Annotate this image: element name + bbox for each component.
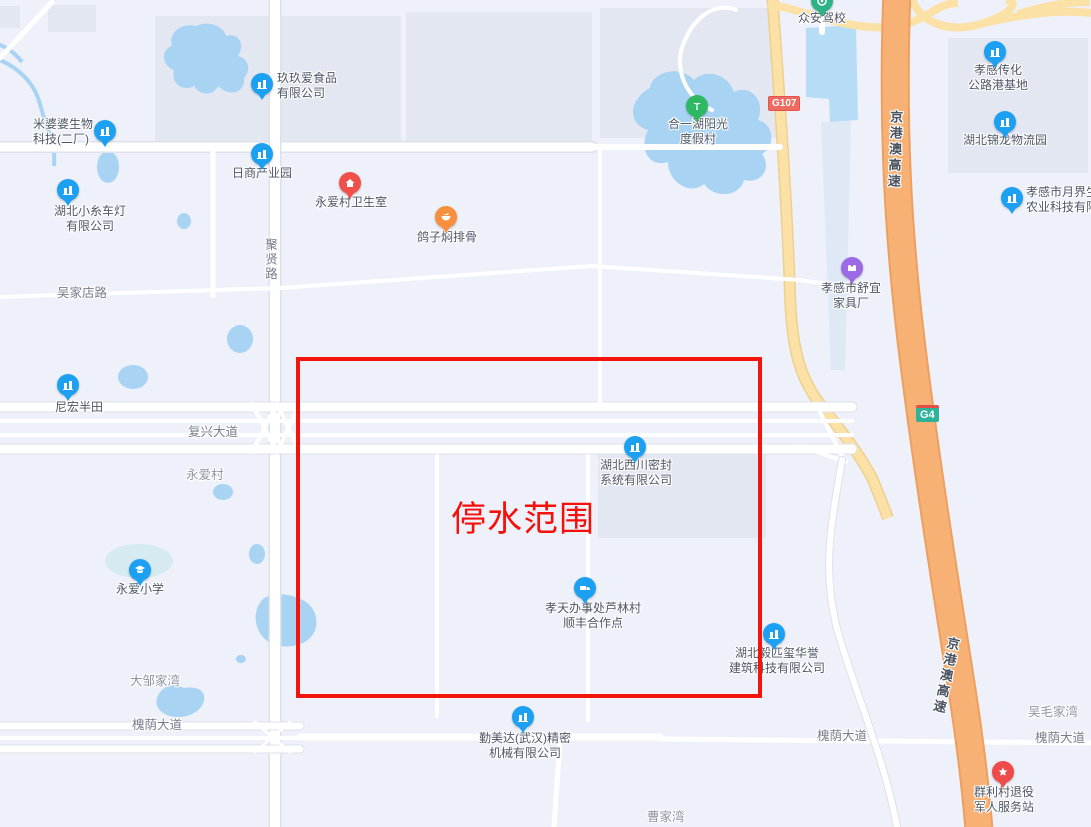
canal-pale bbox=[821, 121, 851, 370]
poi-pin-jinlong[interactable] bbox=[994, 111, 1016, 133]
poi-label-line: 尼宏半田 bbox=[55, 400, 103, 415]
poi-label-line: 军人服务站 bbox=[974, 800, 1034, 815]
poi-label-yuejie[interactable]: 孝感市月界生农业科技有限公 bbox=[1026, 185, 1091, 215]
food-bowl-icon bbox=[440, 211, 452, 223]
building-icon bbox=[62, 184, 74, 196]
g4-road-badge: G4 bbox=[916, 405, 939, 422]
poi-pin-yipixi[interactable] bbox=[763, 623, 785, 645]
poi-label-nihong[interactable]: 尼宏半田 bbox=[55, 400, 103, 415]
g107-road-badge: G107 bbox=[768, 96, 800, 111]
poi-pin-qinmeida[interactable] bbox=[512, 706, 534, 728]
expressway-label: 京港澳高速 bbox=[886, 110, 904, 190]
poi-pin-yuejie[interactable] bbox=[1001, 187, 1023, 209]
water-outage-zone-label: 停水范围 bbox=[451, 491, 595, 542]
poi-pin-pigeon-restaurant[interactable] bbox=[435, 206, 457, 228]
village-label-caojiawan: 曹家湾 bbox=[647, 810, 685, 825]
road-label-fuxingdadao: 复兴大道 bbox=[188, 425, 238, 440]
poi-label-jiujiuai[interactable]: 玖玖爱食品有限公司 bbox=[277, 71, 337, 101]
poi-pin-koito[interactable] bbox=[57, 179, 79, 201]
village-label-wumaojiawan: 吴毛家湾 bbox=[1028, 705, 1078, 720]
road-label-huaiyindadao: 槐荫大道 bbox=[817, 729, 867, 744]
building-icon bbox=[99, 125, 111, 137]
building-icon bbox=[256, 78, 268, 90]
poi-pin-jiujiuai[interactable] bbox=[251, 73, 273, 95]
poi-label-line: 公路港基地 bbox=[968, 78, 1028, 93]
poi-pin-clinic[interactable] bbox=[339, 172, 361, 194]
poi-label-line: 有限公司 bbox=[54, 219, 126, 234]
poi-label-line: 机械有限公司 bbox=[479, 746, 571, 761]
steering-wheel-icon bbox=[816, 0, 828, 7]
building-icon bbox=[999, 116, 1011, 128]
poi-label-line: 孝感市月界生 bbox=[1026, 185, 1091, 200]
poi-label-line: 米婆婆生物 bbox=[33, 117, 93, 132]
village-label-yongaicun: 永爱村 bbox=[186, 468, 224, 483]
road-label-huaiyindadao: 槐荫大道 bbox=[1035, 731, 1085, 746]
poi-label-line: 度假村 bbox=[668, 132, 728, 147]
village-label-dazoujiawan: 大邹家湾 bbox=[130, 674, 180, 689]
poi-label-line: 科技(二厂) bbox=[33, 132, 93, 147]
poi-pin-veterans-station[interactable] bbox=[992, 761, 1014, 783]
road-label-juxianlu: 聚贤路 bbox=[262, 238, 277, 282]
poi-pin-primary-school[interactable] bbox=[129, 559, 151, 581]
sofa-icon bbox=[846, 262, 858, 274]
poi-label-line: 农业科技有限公 bbox=[1026, 200, 1091, 215]
poi-pin-rishang[interactable] bbox=[251, 143, 273, 165]
building-icon bbox=[768, 628, 780, 640]
poi-pin-mipopo[interactable] bbox=[94, 120, 116, 142]
building-icon bbox=[62, 379, 74, 391]
building-icon bbox=[989, 46, 1001, 58]
building-icon bbox=[256, 148, 268, 160]
building-icon bbox=[517, 711, 529, 723]
building-icon bbox=[1006, 192, 1018, 204]
poi-label-mipopo[interactable]: 米婆婆生物科技(二厂) bbox=[33, 117, 93, 147]
poi-pin-resort[interactable] bbox=[686, 95, 708, 117]
poi-pin-furniture[interactable] bbox=[841, 257, 863, 279]
house-icon bbox=[344, 177, 356, 189]
map-viewport[interactable]: { "overlay": { "zone_label": "停水范围" }, "… bbox=[0, 0, 1091, 827]
road-label-wujiadianlu: 吴家店路 bbox=[57, 286, 107, 301]
school-icon bbox=[134, 564, 146, 576]
road-label-huaiyindadao: 槐荫大道 bbox=[132, 718, 182, 733]
poi-label-line: 有限公司 bbox=[277, 86, 337, 101]
poi-pin-chuanhua[interactable] bbox=[984, 41, 1006, 63]
star-icon bbox=[997, 766, 1009, 778]
palm-tree-icon bbox=[691, 100, 703, 112]
canal bbox=[806, 25, 858, 122]
poi-label-line: 家具厂 bbox=[821, 296, 881, 311]
poi-pin-nihong[interactable] bbox=[57, 374, 79, 396]
poi-label-line: 玖玖爱食品 bbox=[277, 71, 337, 86]
